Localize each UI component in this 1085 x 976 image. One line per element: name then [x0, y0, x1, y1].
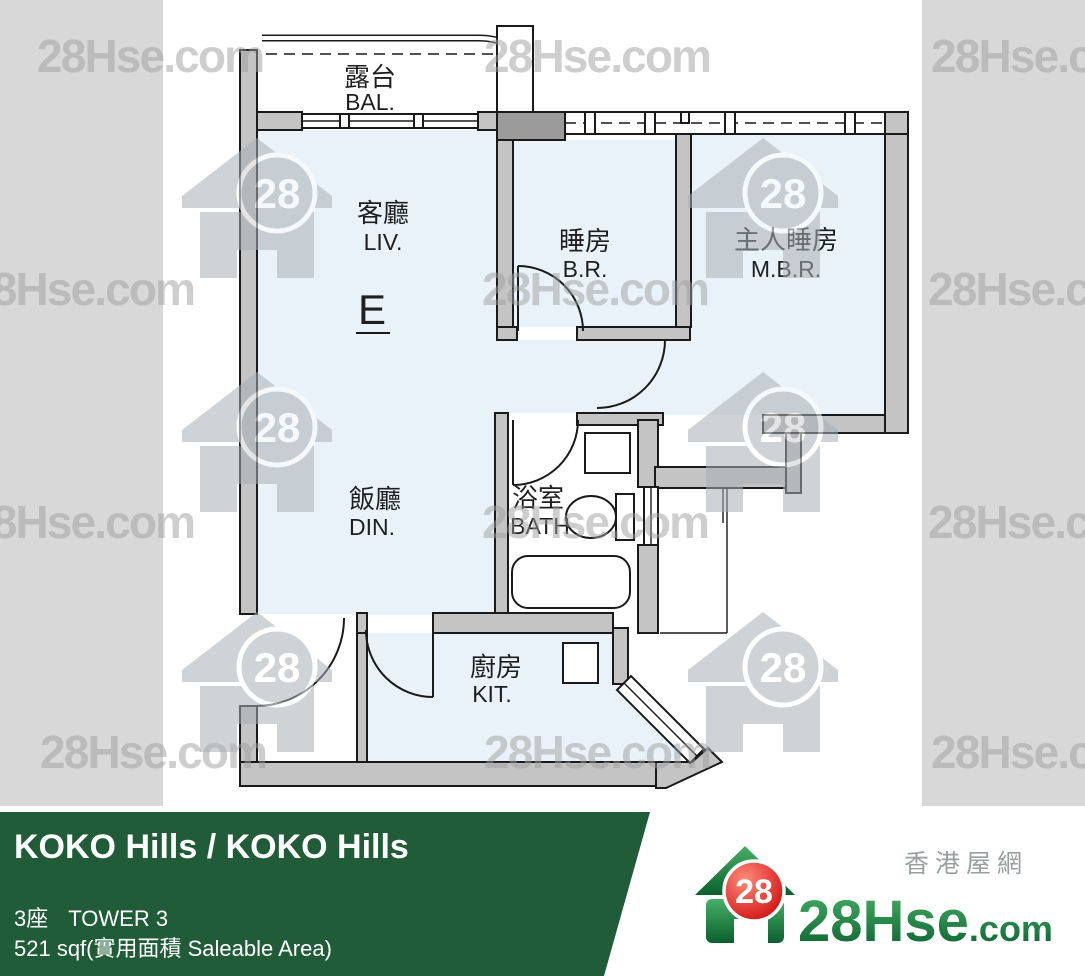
window-living: [302, 114, 478, 128]
room-label-kitchen-en: KIT.: [472, 681, 512, 707]
floorplan-image: 28: [0, 0, 1085, 976]
room-label-kitchen-zh: 廚房: [470, 652, 522, 682]
tower-label-zh: 3座: [14, 906, 48, 931]
right-margin-panel: [922, 0, 1085, 806]
room-label-balcony-zh: 露台: [344, 62, 396, 92]
watermark-text: 28Hse.com: [928, 263, 1085, 315]
unit-label: E: [356, 286, 390, 333]
room-label-living-en: LIV.: [364, 229, 403, 255]
wall-bath-right-lower: [638, 545, 658, 633]
watermark-text: 28Hse.com: [37, 30, 265, 82]
watermark-text: 28Hse.com: [928, 496, 1085, 548]
corridor-floor: [497, 340, 663, 413]
estate-title: KOKO Hills / KOKO Hills: [14, 828, 409, 866]
wall-right: [885, 112, 908, 433]
logo-wordmark-domain: .com: [969, 908, 1053, 949]
room-label-dining-zh: 飯廳: [349, 484, 401, 514]
wall-bedroom-bottom: [577, 327, 690, 340]
left-margin-panel: [0, 0, 163, 806]
area-label: 521 sqf(實用面積 Saleable Area): [14, 936, 332, 961]
room-label-balcony-en: BAL.: [345, 89, 395, 115]
window-bedrooms: [565, 112, 885, 134]
wall-living-top-right: [478, 112, 497, 130]
logo-tagline: 香港屋網: [904, 850, 1028, 878]
wall-kitchen-left: [357, 633, 367, 762]
watermark-text: 28Hse.com: [482, 496, 710, 548]
wall-bedroom-bottom-stub: [497, 327, 517, 340]
unit-letter: E: [358, 286, 386, 333]
wall-kitchen-right: [613, 628, 628, 684]
watermark-text: 28Hse.com: [931, 726, 1085, 778]
logo-wordmark-site: 28Hse: [798, 889, 969, 954]
wall-block-entry: [497, 112, 565, 140]
room-label-bedroom-zh: 睡房: [559, 226, 611, 256]
watermark-text: 28Hse.com: [0, 496, 196, 548]
bathtub: [512, 556, 630, 608]
wall-living-top-left: [257, 112, 302, 130]
tower-label: 3座TOWER 3: [14, 906, 168, 931]
tower-label-en: TOWER 3: [68, 906, 168, 931]
wall-left: [240, 50, 257, 614]
washbasin: [585, 433, 630, 473]
room-label-living-zh: 客廳: [357, 198, 409, 228]
logo-badge-number: 28: [735, 873, 773, 911]
watermark-text: 28Hse.com: [931, 30, 1085, 82]
wall-kitchen-top: [433, 613, 613, 633]
watermark-text: 28Hse.com: [484, 30, 712, 82]
kitchen-appliance: [563, 643, 598, 683]
watermark-text: 28Hse.com: [482, 263, 710, 315]
floorplan-page: 28: [0, 0, 1085, 976]
watermark-text: 28Hse.com: [0, 263, 196, 315]
watermark-text: 28Hse.com: [484, 726, 712, 778]
room-label-dining-en: DIN.: [349, 514, 395, 540]
